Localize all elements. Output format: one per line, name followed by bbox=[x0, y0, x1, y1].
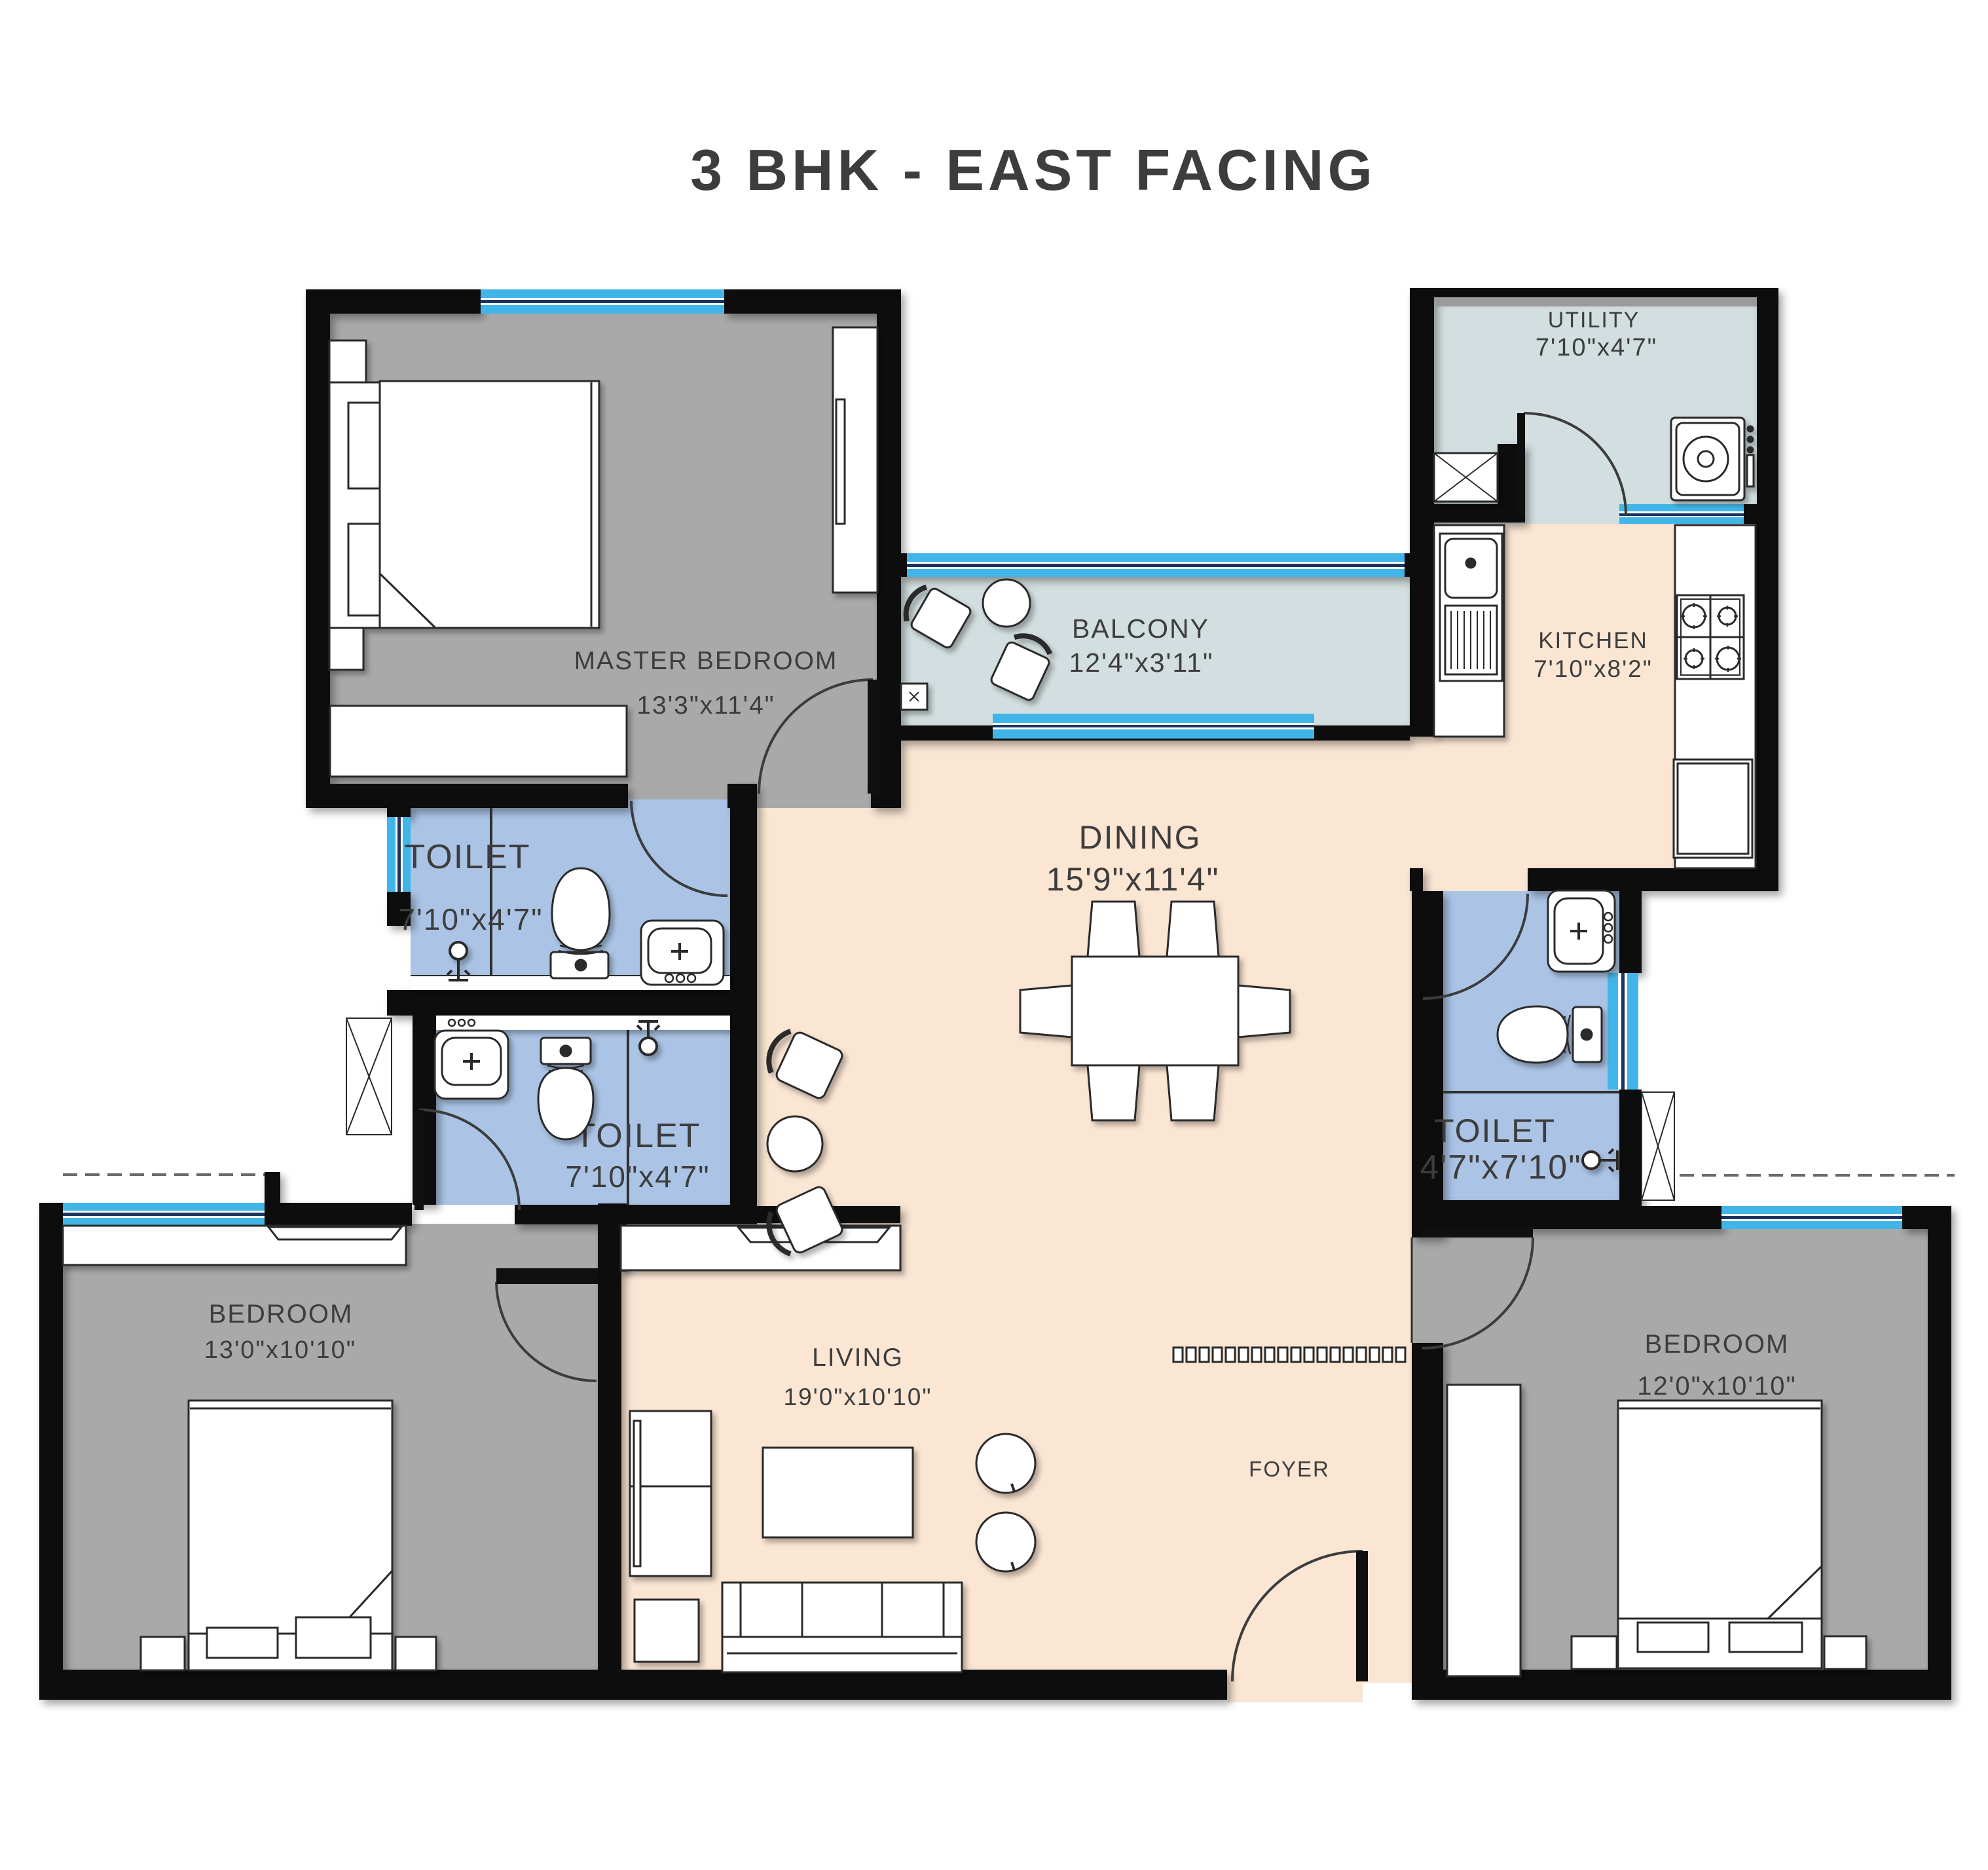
svg-text:TOILET: TOILET bbox=[404, 838, 530, 876]
svg-text:DINING: DINING bbox=[1079, 819, 1202, 856]
svg-text:TOILET: TOILET bbox=[574, 1117, 701, 1155]
svg-text:FOYER: FOYER bbox=[1249, 1457, 1330, 1481]
svg-text:BALCONY: BALCONY bbox=[1072, 614, 1209, 644]
svg-text:MASTER BEDROOM: MASTER BEDROOM bbox=[574, 647, 838, 675]
svg-text:12'4"x3'11": 12'4"x3'11" bbox=[1069, 648, 1213, 678]
svg-text:12'0"x10'10": 12'0"x10'10" bbox=[1637, 1372, 1796, 1401]
svg-text:LIVING: LIVING bbox=[812, 1344, 904, 1372]
svg-text:TOILET: TOILET bbox=[1434, 1112, 1556, 1149]
svg-text:15'9"x11'4": 15'9"x11'4" bbox=[1046, 861, 1220, 898]
svg-text:3 BHK - EAST FACING: 3 BHK - EAST FACING bbox=[690, 137, 1376, 202]
svg-text:7'10"x8'2": 7'10"x8'2" bbox=[1534, 655, 1653, 682]
svg-text:4'7"x7'10": 4'7"x7'10" bbox=[1420, 1148, 1581, 1186]
svg-text:BEDROOM: BEDROOM bbox=[209, 1300, 354, 1329]
svg-text:KITCHEN: KITCHEN bbox=[1538, 628, 1648, 653]
svg-text:7'10"x4'7": 7'10"x4'7" bbox=[565, 1160, 710, 1194]
svg-text:7'10"x4'7": 7'10"x4'7" bbox=[398, 902, 543, 936]
svg-text:BEDROOM: BEDROOM bbox=[1645, 1330, 1790, 1359]
svg-text:19'0"x10'10": 19'0"x10'10" bbox=[784, 1384, 932, 1410]
svg-text:13'3"x11'4": 13'3"x11'4" bbox=[636, 691, 775, 720]
svg-text:UTILITY: UTILITY bbox=[1548, 308, 1640, 333]
svg-text:13'0"x10'10": 13'0"x10'10" bbox=[204, 1336, 356, 1364]
svg-text:7'10"x4'7": 7'10"x4'7" bbox=[1536, 334, 1657, 361]
